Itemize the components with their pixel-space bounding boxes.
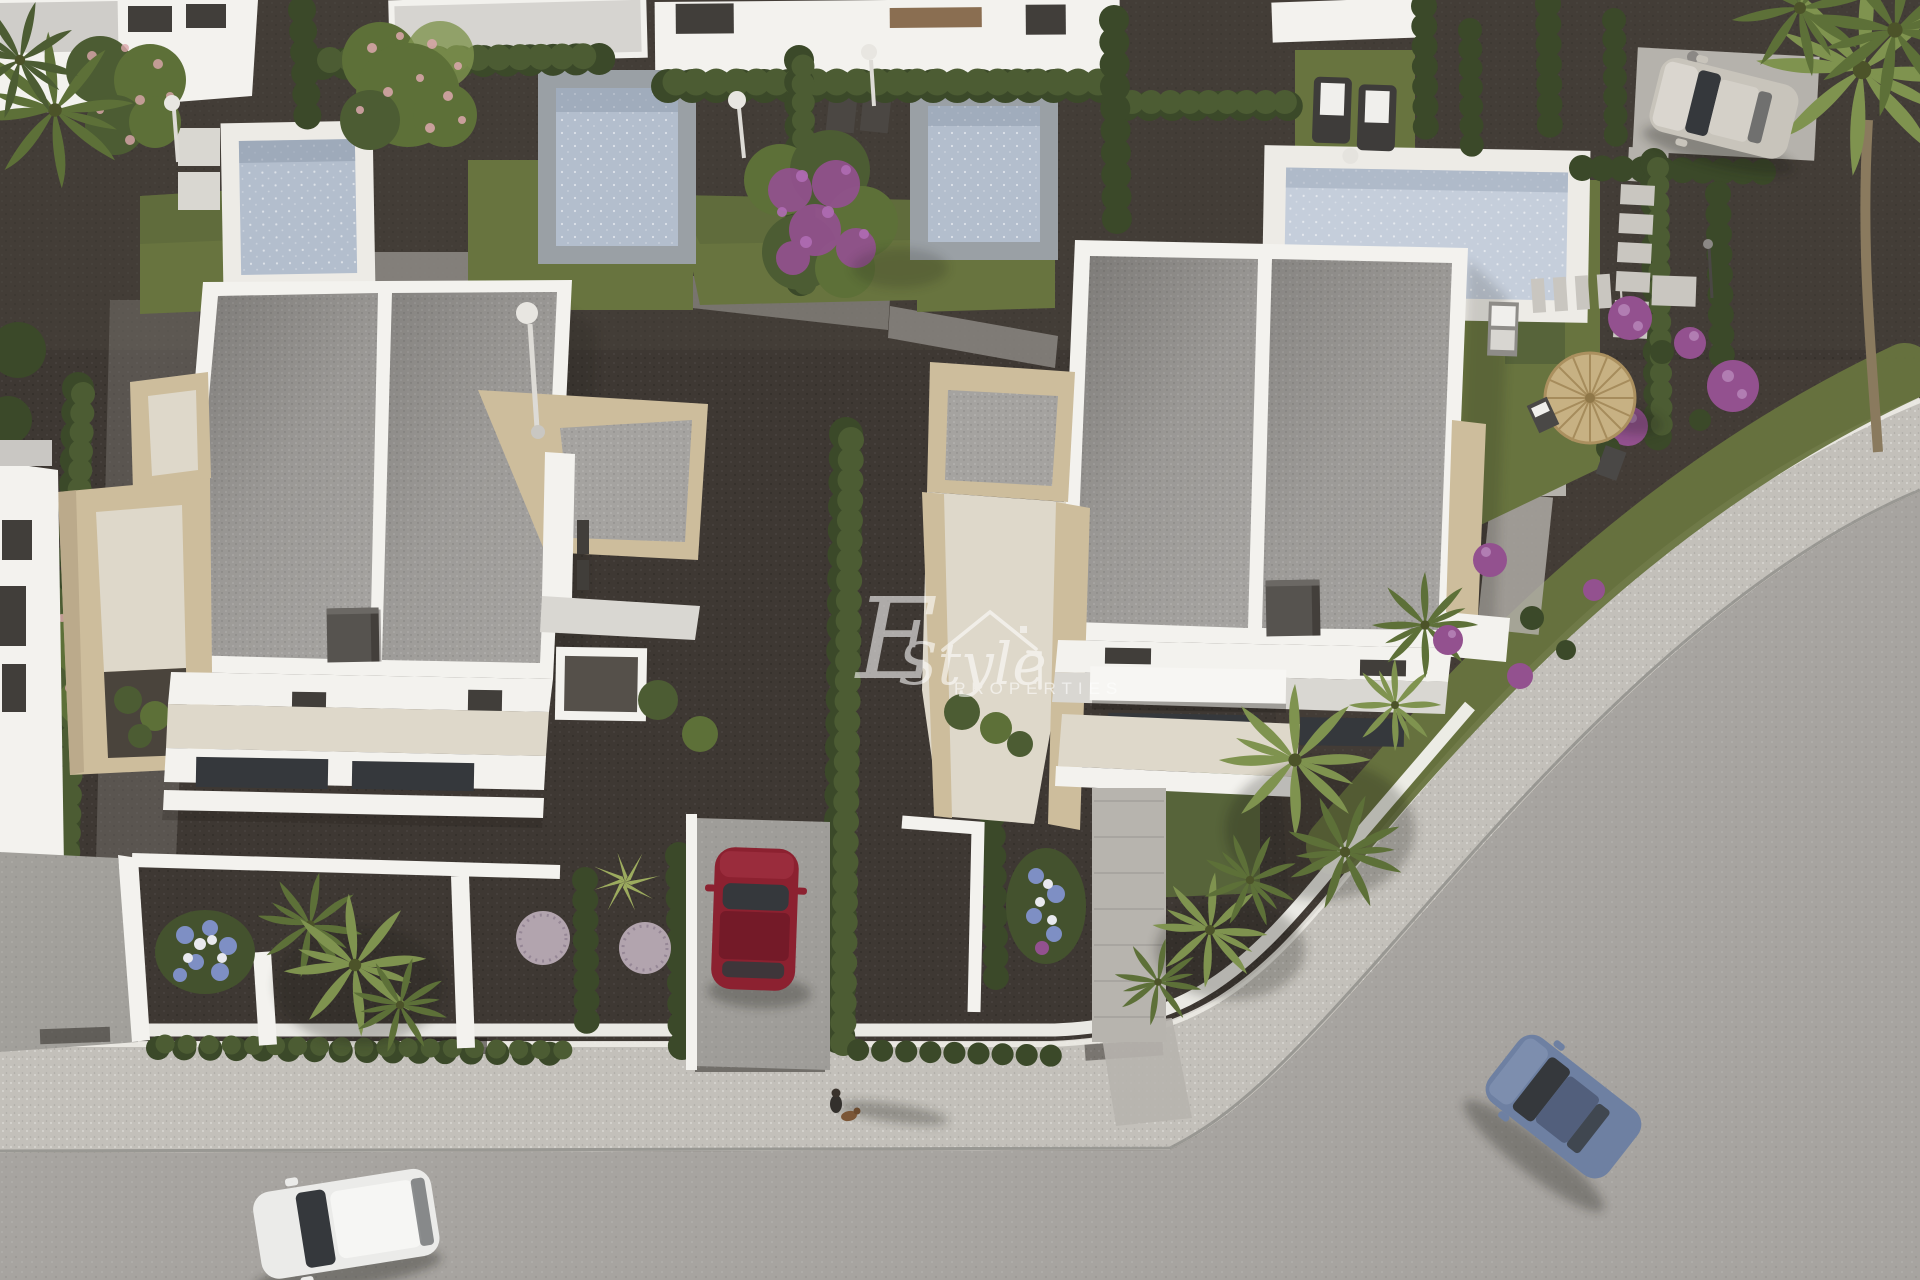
roof-left-half [186,293,378,660]
pergola-wing [927,362,1075,502]
swimming-pool [910,88,1058,260]
flower-bed [155,910,255,994]
plot-wall [262,952,268,1045]
flower-bed [1006,848,1086,964]
swimming-pool [221,121,376,294]
roof-right-half [1262,259,1452,630]
roof-left-half [1075,256,1258,628]
outdoor-sofa [1487,301,1519,356]
aerial-render: E Style PROPERTIES [0,0,1920,1280]
plot-wall [460,876,466,1048]
flowering-tree [340,21,477,150]
person [830,1095,842,1113]
deck-pad [178,172,220,210]
chimney [327,608,382,663]
deck-pad [178,128,220,166]
chimney [1266,580,1321,637]
watermark-subtitle: PROPERTIES [954,679,1123,698]
ramp-driveway [0,852,150,1052]
facade [162,672,553,828]
